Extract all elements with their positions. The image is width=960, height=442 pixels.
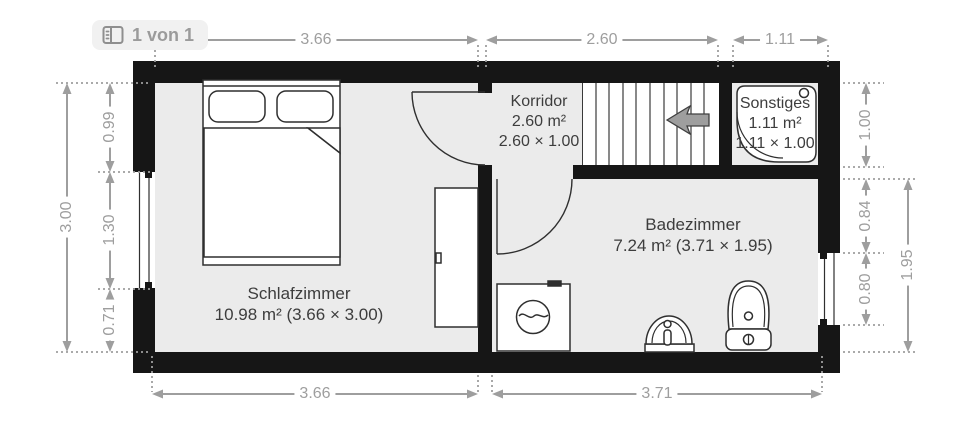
room-name: Badezimmer — [543, 214, 843, 235]
label-korridor: Korridor 2.60 m² 2.60 × 1.00 — [429, 92, 649, 152]
dim-left-outer: 3.00 — [58, 196, 76, 237]
dim-left-inner-2: 1.30 — [101, 209, 119, 250]
dim-right-outer: 1.95 — [899, 244, 917, 285]
page-indicator-badge[interactable]: 1 von 1 — [92, 20, 208, 50]
page-indicator-label: 1 von 1 — [132, 25, 194, 46]
room-dims: 2.60 × 1.00 — [429, 132, 649, 152]
label-badezimmer: Badezimmer 7.24 m² (3.71 × 1.95) — [543, 214, 843, 256]
dim-bottom-schlafzimmer: 3.66 — [294, 385, 335, 403]
window-left — [133, 172, 155, 288]
room-area: 7.24 m² (3.71 × 1.95) — [543, 235, 843, 256]
door-opening-badezimmer — [492, 165, 573, 179]
dim-top-korridor: 2.60 — [581, 31, 622, 49]
room-area: 10.98 m² (3.66 × 3.00) — [149, 304, 449, 325]
floorplan-page-icon — [102, 24, 124, 46]
label-schlafzimmer: Schlafzimmer 10.98 m² (3.66 × 3.00) — [149, 283, 449, 325]
wall-exterior-top — [133, 61, 840, 83]
room-area: 1.11 m² — [695, 114, 855, 134]
room-badezimmer-floor — [492, 179, 818, 352]
room-name: Schlafzimmer — [149, 283, 449, 304]
dim-left-inner-1: 0.99 — [101, 106, 119, 147]
room-name: Korridor — [429, 92, 649, 112]
wall-exterior-bottom — [133, 352, 840, 373]
dim-right-inner-1: 1.00 — [857, 104, 875, 145]
dim-top-sonstiges: 1.11 — [760, 31, 800, 49]
wall-schlafzimmer-bad — [478, 165, 492, 352]
dim-bottom-badezimmer: 3.71 — [636, 385, 677, 403]
dim-left-inner-3: 0.71 — [101, 299, 119, 340]
wall-korridor-bad — [573, 165, 818, 179]
floor-plan-canvas: 1 von 1 — [0, 0, 960, 442]
room-name: Sonstiges — [695, 94, 855, 114]
dim-top-schlafzimmer: 3.66 — [295, 31, 336, 49]
dim-right-inner-2: 0.84 — [857, 195, 875, 236]
room-dims: 1.11 × 1.00 — [695, 134, 855, 154]
room-area: 2.60 m² — [429, 112, 649, 132]
dim-right-inner-3: 0.80 — [857, 268, 875, 309]
label-sonstiges: Sonstiges 1.11 m² 1.11 × 1.00 — [695, 94, 855, 154]
window-right — [818, 253, 840, 325]
